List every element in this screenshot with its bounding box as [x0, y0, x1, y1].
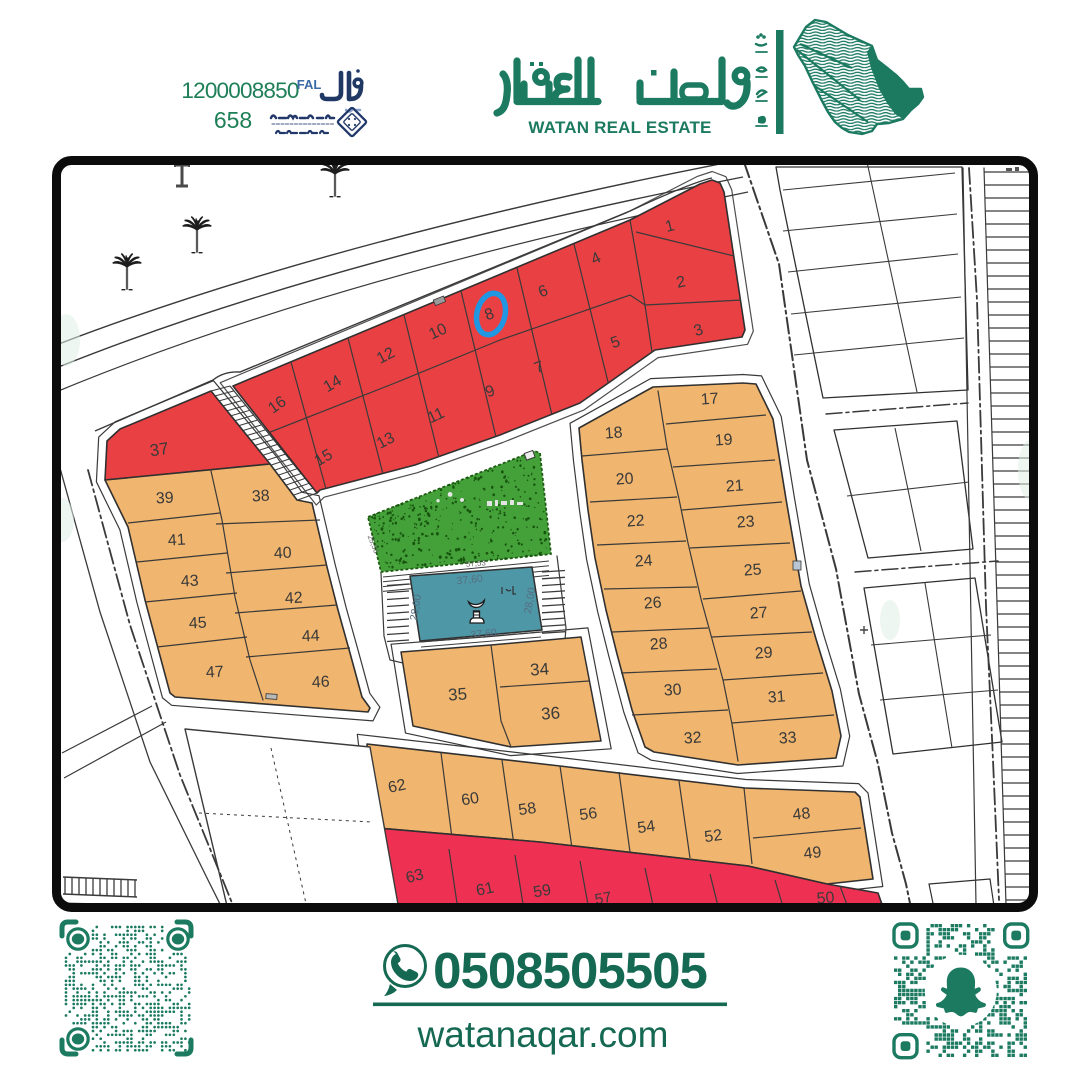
- svg-text:52: 52: [703, 827, 723, 846]
- svg-text:30: 30: [663, 681, 682, 699]
- svg-text:40: 40: [273, 545, 292, 563]
- svg-text:54: 54: [636, 818, 656, 837]
- svg-text:61: 61: [475, 879, 496, 899]
- svg-text:36: 36: [541, 703, 561, 723]
- svg-text:18: 18: [604, 424, 623, 442]
- svg-text:26: 26: [643, 594, 662, 612]
- svg-text:47: 47: [205, 664, 224, 682]
- svg-text:56: 56: [578, 805, 598, 824]
- svg-text:28: 28: [649, 635, 668, 653]
- svg-text:21: 21: [725, 477, 744, 495]
- svg-text:33: 33: [778, 729, 797, 747]
- svg-text:58: 58: [517, 800, 537, 819]
- svg-text:38: 38: [251, 488, 270, 506]
- svg-text:45: 45: [188, 615, 207, 633]
- svg-text:62: 62: [387, 776, 408, 796]
- svg-text:59: 59: [532, 882, 553, 902]
- svg-text:39: 39: [155, 490, 174, 508]
- svg-text:19: 19: [714, 431, 733, 449]
- svg-text:22: 22: [626, 512, 645, 530]
- svg-text:48: 48: [792, 805, 812, 824]
- svg-text:WATAN REAL ESTATE: WATAN REAL ESTATE: [528, 118, 711, 137]
- svg-text:44: 44: [301, 628, 320, 646]
- svg-text:31: 31: [767, 688, 786, 706]
- svg-text:0508505505: 0508505505: [433, 942, 707, 999]
- svg-text:FAL: FAL: [297, 77, 322, 92]
- svg-text:37: 37: [149, 439, 170, 460]
- svg-text:20: 20: [615, 470, 634, 488]
- svg-text:25: 25: [743, 561, 762, 579]
- svg-text:27: 27: [749, 604, 768, 622]
- svg-text:24: 24: [634, 552, 653, 570]
- svg-text:1200008850: 1200008850: [181, 78, 298, 103]
- svg-text:watanaqar.com: watanaqar.com: [417, 1014, 669, 1055]
- svg-text:23: 23: [736, 513, 755, 531]
- svg-text:17: 17: [700, 390, 719, 408]
- svg-text:46: 46: [311, 674, 330, 692]
- svg-text:43: 43: [180, 573, 199, 591]
- svg-text:49: 49: [803, 844, 823, 863]
- svg-text:60: 60: [460, 790, 481, 810]
- svg-text:42: 42: [284, 590, 303, 608]
- svg-text:32: 32: [683, 729, 702, 747]
- svg-text:658: 658: [214, 107, 252, 133]
- svg-text:34: 34: [530, 659, 550, 679]
- svg-text:29: 29: [754, 644, 773, 662]
- svg-text:35: 35: [448, 684, 468, 704]
- svg-text:41: 41: [167, 532, 186, 550]
